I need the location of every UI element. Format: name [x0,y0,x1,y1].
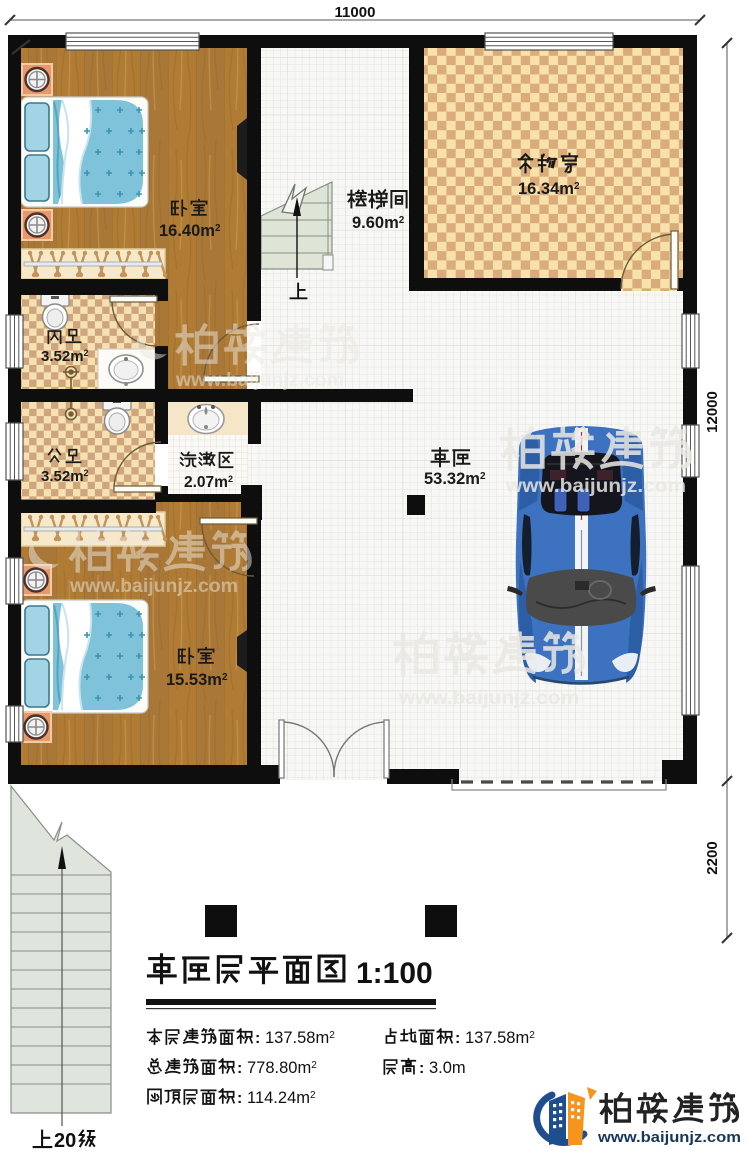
svg-text:137.58m2: 137.58m2 [265,1029,335,1047]
svg-text:15.53m2: 15.53m2 [166,671,228,689]
svg-text:www.baijunjz.com: www.baijunjz.com [505,476,686,497]
svg-text:12000: 12000 [704,391,721,433]
svg-text:www.baijunjz.com: www.baijunjz.com [398,688,579,709]
svg-text:11000: 11000 [335,4,376,21]
svg-text:1:100: 1:100 [356,957,433,990]
svg-text:114.24m2: 114.24m2 [247,1089,316,1107]
svg-text::: : [255,1030,260,1047]
svg-text:www.baijunjz.com: www.baijunjz.com [597,1129,741,1146]
svg-text:www.baijunjz.com: www.baijunjz.com [69,576,238,597]
svg-text:3.0m: 3.0m [429,1059,466,1077]
svg-text::: : [237,1060,242,1077]
svg-text:3.52m2: 3.52m2 [41,468,89,485]
svg-text:www.baijunjz.com: www.baijunjz.com [175,370,344,391]
svg-text:778.80m2: 778.80m2 [247,1059,317,1077]
svg-text:16.34m2: 16.34m2 [518,180,580,198]
svg-text:2.07m2: 2.07m2 [184,474,233,491]
svg-text::: : [237,1090,242,1107]
svg-text:9.60m2: 9.60m2 [352,214,405,232]
svg-text:2200: 2200 [704,841,721,874]
svg-text:3.52m2: 3.52m2 [41,348,89,365]
svg-text:20: 20 [54,1130,76,1152]
svg-text::: : [419,1060,424,1077]
svg-text:137.58m2: 137.58m2 [465,1029,535,1047]
svg-text:53.32m2: 53.32m2 [424,470,486,488]
svg-text:16.40m2: 16.40m2 [159,222,221,240]
svg-text::: : [455,1030,460,1047]
